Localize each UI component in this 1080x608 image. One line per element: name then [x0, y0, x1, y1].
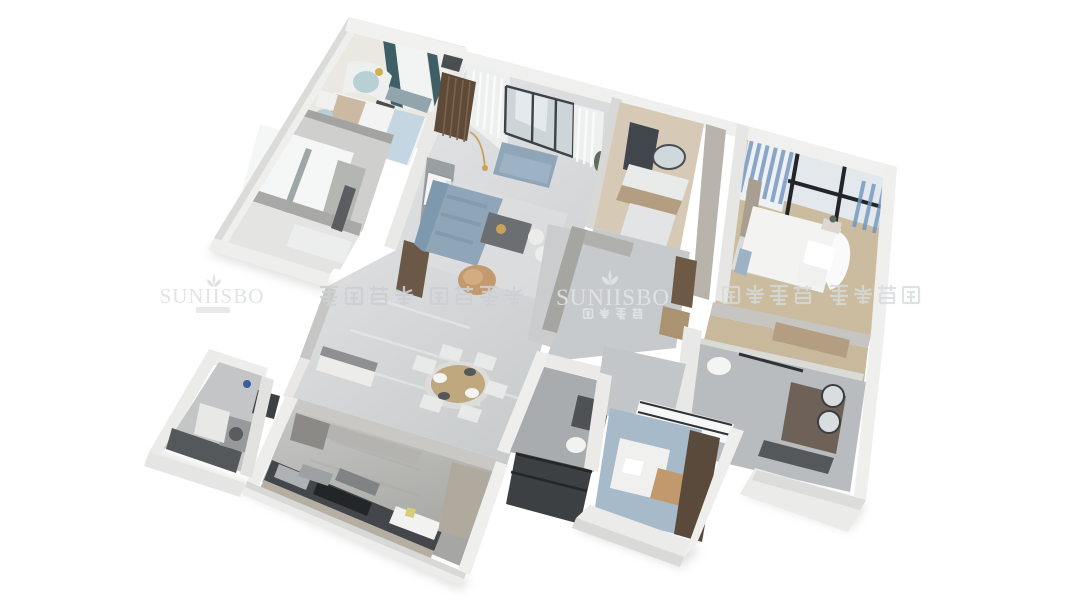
- svg-text:SUNIISBO: SUNIISBO: [556, 285, 670, 310]
- svg-text:SUNIISBO: SUNIISBO: [160, 284, 265, 308]
